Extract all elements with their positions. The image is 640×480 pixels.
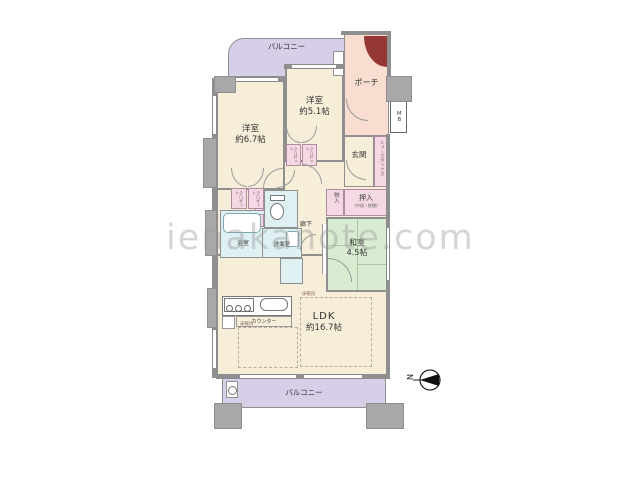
closet-label: クロゼット [235,191,243,208]
closet: クロゼット [248,188,264,209]
room-name: 洋室 [306,96,323,106]
pillar [214,403,242,429]
north-arrow-icon: N [404,366,446,394]
room-size: 4.5帖 [347,248,368,257]
pillar [386,76,412,102]
wall [387,32,391,78]
room-size: 約16.7帖 [294,323,354,334]
window [240,374,296,379]
storage-label: 物入 [332,192,338,215]
pillar [214,76,236,93]
room-name: 洋室 [242,124,259,134]
floor-heating-zone: 床暖房 [238,327,298,368]
closet-label: クロゼット [252,191,260,208]
floor-heating-label: 床暖房 [302,291,316,297]
window [304,374,362,379]
pillar [207,288,217,328]
wall [341,31,391,35]
pillar [203,138,217,188]
pillar [205,210,217,256]
japanese-room-label: 和室 4.5帖 [326,238,388,259]
room-name: LDK [294,310,354,323]
western-room-small-label: 洋室 約5.1帖 [285,96,344,118]
pillar [366,403,404,429]
oshiire-closet: 押入 (中段・枕棚) [344,189,388,216]
toilet-bowl-icon [270,203,284,220]
room-size: 約6.7帖 [235,135,266,145]
closet-label: クロゼット [306,147,314,165]
meter-box-label: MB [396,111,402,123]
hallway-label: 廊下 [300,221,312,229]
meter-box: MB [390,101,407,133]
shoes-box-label: シューズボックス [379,140,384,186]
fridge-space [222,316,235,329]
room-size: 約5.1帖 [299,107,330,117]
balcony-top-label: バルコニー [228,42,345,52]
closet: クロゼット [286,144,301,166]
room-name: 和室 [349,238,365,247]
window [236,77,278,82]
closet-label: クロゼット [290,147,298,165]
north-label: N [406,374,415,380]
western-room-large-label: 洋室 約6.7帖 [216,124,285,146]
window [212,330,217,368]
oshiire-label: 押入 [345,193,387,203]
compass-needle [420,374,439,386]
washroom-label: 洗面室 [262,242,302,249]
kitchen-sink-icon [260,298,288,311]
burner-icon [244,305,251,312]
balcony-bottom-label: バルコニー [222,388,386,398]
closet: クロゼット [302,144,317,166]
storage-compartment: 物入 [326,189,344,216]
toilet-tank-icon [270,195,285,201]
ldk-label: LDK 約16.7帖 [294,310,354,334]
burner-icon [235,305,242,312]
closet: クロゼット [231,188,247,209]
burner-icon [226,305,233,312]
window [292,64,336,69]
floor-heating-label: 床暖房 [240,321,254,327]
washer-space [280,258,303,284]
entrance-label: 玄関 [344,150,374,160]
oshiire-note: (中段・枕棚) [345,203,387,209]
bathroom-label: 浴室 [220,240,266,248]
bathtub-icon [223,213,261,233]
porch-label: ポーチ [344,78,389,88]
floor-plan: バルコニー ポーチ MB 洋室 約5.1帖 洋室 約6.7帖 玄関 シューズボッ… [0,0,640,480]
stove-icon [224,298,254,312]
